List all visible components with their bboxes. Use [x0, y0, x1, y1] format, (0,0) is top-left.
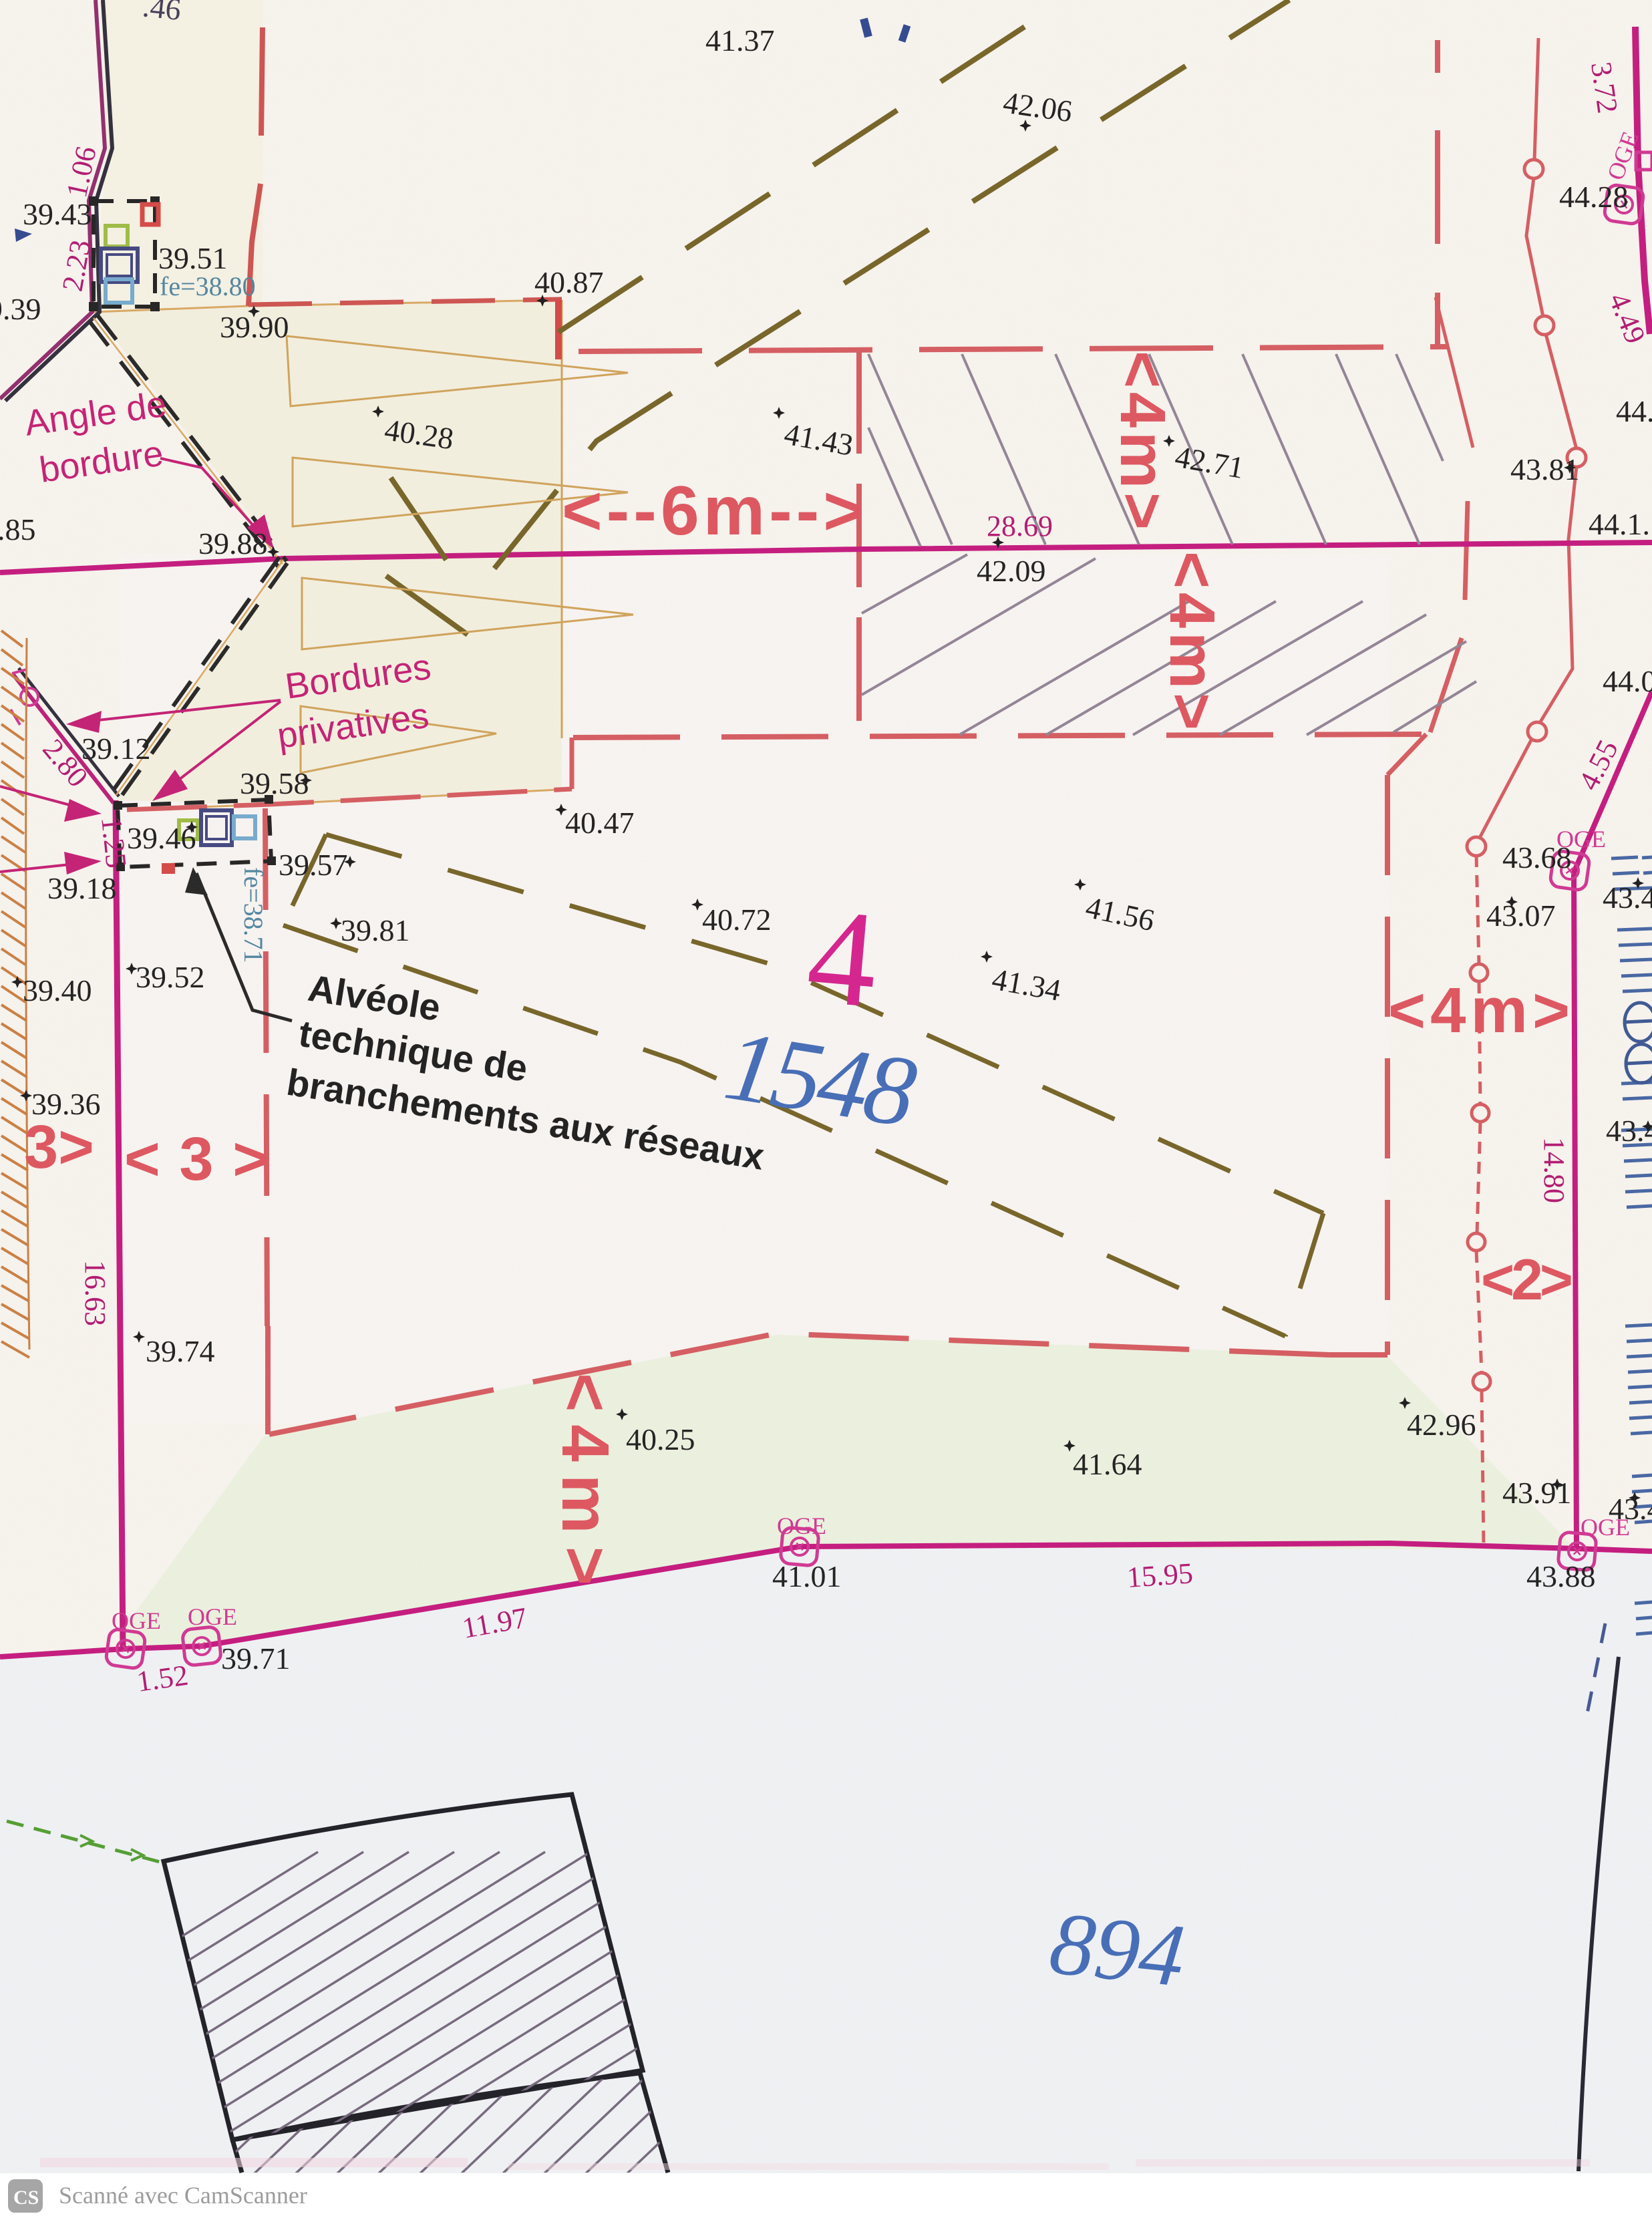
- svg-text:Scanné avec CamScanner: Scanné avec CamScanner: [59, 2182, 307, 2209]
- svg-text:CS: CS: [13, 2187, 39, 2209]
